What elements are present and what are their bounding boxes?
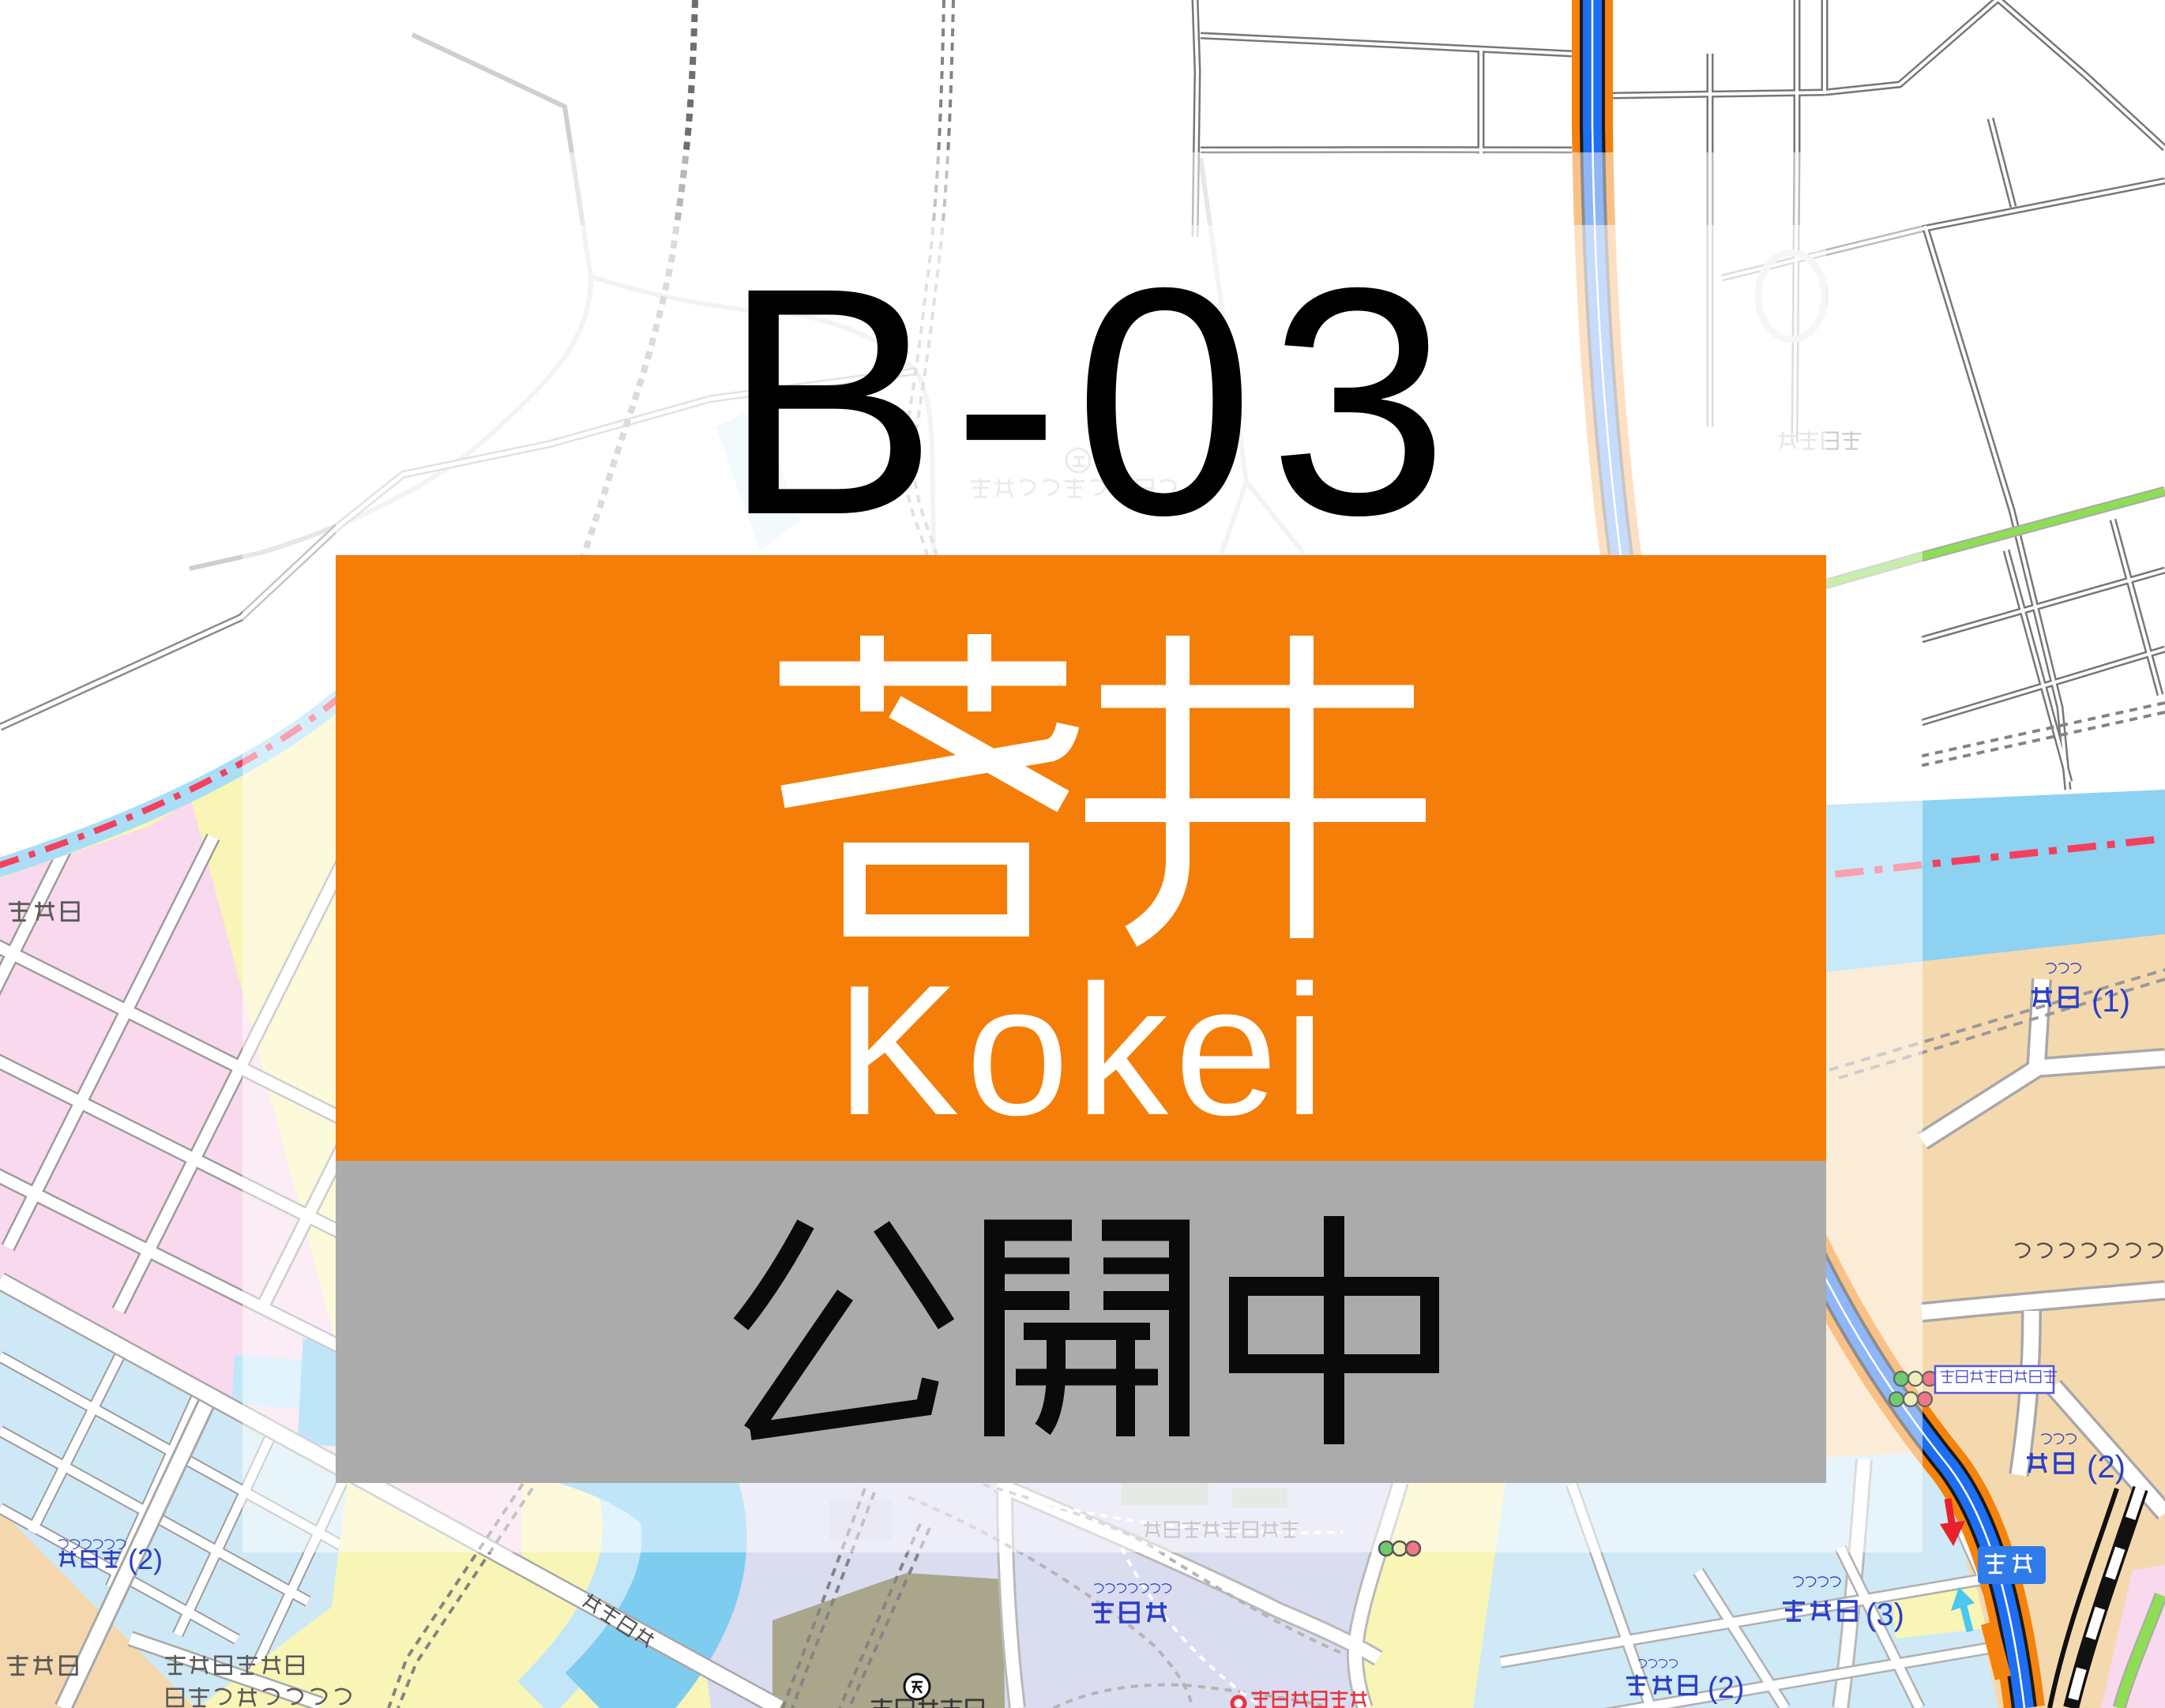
svg-text:(2): (2) [2087, 1450, 2126, 1485]
svg-text:(2): (2) [1708, 1672, 1744, 1705]
svg-text:Kokei: Kokei [836, 946, 1332, 1154]
svg-text:(2): (2) [128, 1543, 163, 1575]
svg-text:(3): (3) [1866, 1597, 1904, 1632]
svg-text:(1): (1) [2092, 984, 2130, 1019]
svg-text:B-03: B-03 [722, 220, 1463, 582]
